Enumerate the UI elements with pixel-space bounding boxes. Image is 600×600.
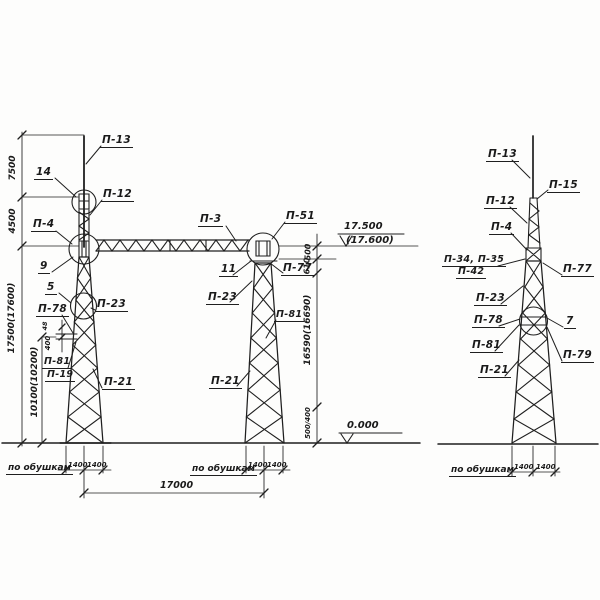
- note-flats-side: по обушкам: [449, 465, 516, 477]
- level-17600-alt: (17.600): [346, 235, 394, 246]
- part-label-p21-side: П-21: [478, 364, 511, 378]
- drawing-canvas: [0, 0, 600, 600]
- part-label-p78-front: П-78: [36, 303, 69, 317]
- dim-7500: 7500: [8, 155, 18, 180]
- part-label-p21-front-left: П-21: [102, 376, 135, 390]
- dim-1400-mid-b: 1400: [267, 461, 286, 469]
- traverse-beam: [96, 233, 279, 265]
- level-marks: [338, 234, 404, 443]
- dim-10100-10200: 10100(10200): [30, 347, 40, 418]
- part-label-p79-side: П-79: [561, 349, 594, 363]
- part-label-p13-front: П-13: [100, 134, 133, 148]
- part-label-p81-side: П-81: [470, 339, 503, 353]
- left-tower: [56, 136, 111, 443]
- node-label-5: 5: [45, 281, 57, 295]
- dim-500-400: 500/400: [304, 407, 312, 439]
- node-label-9: 9: [38, 260, 50, 274]
- note-flats-mid: по обушкам: [190, 464, 257, 476]
- dim-17000: 17000: [160, 480, 193, 491]
- part-label-p21-front-mid: П-21: [209, 375, 242, 389]
- part-label-p13-side: П-13: [486, 148, 519, 162]
- dim-1400-left-b: 1400: [87, 461, 106, 469]
- part-label-p23-side: П-23: [474, 292, 507, 306]
- level-17500: 17.500: [344, 221, 383, 232]
- drawing-sheet: П-13 14 П-12 П-4 9 5 П-23 П-78 П-81 П-19…: [0, 0, 600, 600]
- node-label-11: 11: [219, 263, 238, 277]
- dim-16590-16690: 16590(16690): [303, 295, 313, 366]
- dim-4500: 4500: [8, 208, 18, 233]
- middle-tower: [245, 263, 284, 443]
- dim-1400-mid-a: 1400: [248, 461, 267, 469]
- part-label-p81-front-mid: П-81: [274, 309, 304, 322]
- part-label-p42-side: П-42: [456, 266, 486, 279]
- dim-1400-left-a: 1400: [68, 461, 87, 469]
- part-label-p78-side: П-78: [472, 314, 505, 328]
- part-label-p19-front: П-19: [45, 369, 75, 382]
- part-label-p15-side: П-15: [547, 179, 580, 193]
- dim-610: 610: [303, 258, 312, 275]
- dim-1400-side-a: 1400: [514, 463, 533, 471]
- level-0000: 0.000: [347, 420, 379, 431]
- part-label-p81-front: П-81: [42, 356, 72, 369]
- part-label-p23-front-mid: П-23: [206, 291, 239, 305]
- dim-1400-side-b: 1400: [536, 463, 555, 471]
- note-flats-left: по обушкам: [6, 463, 73, 475]
- node-label-14: 14: [34, 166, 53, 180]
- part-label-p77-side: П-77: [561, 263, 594, 277]
- part-label-p3: П-3: [198, 213, 223, 227]
- dim-400: 400: [44, 336, 52, 351]
- part-label-p23-front-left: П-23: [95, 298, 128, 312]
- dim-17500-17600: 17500(17600): [7, 283, 17, 354]
- part-label-p51: П-51: [284, 210, 317, 224]
- part-label-p12-front: П-12: [101, 188, 134, 202]
- part-label-p4-front: П-4: [31, 218, 56, 232]
- part-label-p4-side: П-4: [489, 221, 514, 235]
- part-label-p12-side: П-12: [484, 195, 517, 209]
- dim-48: 48: [41, 321, 49, 330]
- node-label-7: 7: [564, 315, 576, 329]
